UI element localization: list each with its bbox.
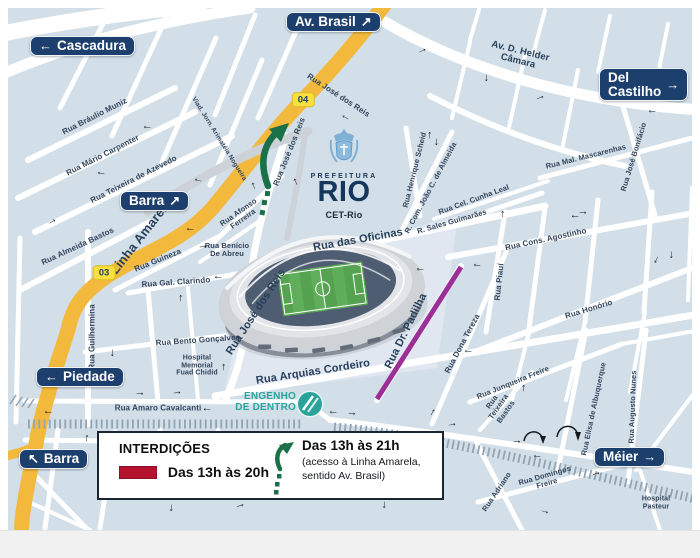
street-label: Rua Amaro Cavalcanti — [115, 405, 202, 414]
direction-sign-cascadura: ←Cascadura — [30, 36, 135, 56]
oneway-arrow-icon: → — [432, 137, 443, 148]
oneway-arrow-icon: → — [218, 362, 229, 373]
street-label: Rua Guilhermina — [89, 304, 98, 370]
legend-green-label: Das 13h às 21h — [302, 438, 420, 453]
oneway-arrow-icon: → — [471, 260, 484, 273]
oneway-arrow-icon: → — [462, 346, 474, 358]
sign-arrow-icon: → — [643, 450, 656, 464]
green-access-arrow-icon — [269, 441, 295, 497]
prefeitura-crest-icon — [328, 128, 360, 166]
oneway-arrow-icon: → — [201, 404, 212, 415]
direction-sign-av-brasil: Av. Brasil↗ — [286, 12, 381, 32]
oneway-arrow-icon: → — [135, 388, 146, 399]
oneway-arrow-icon: → — [518, 383, 529, 394]
road-closure-map: Rua Bráulio MunizRua Mário CarpenterRua … — [0, 0, 700, 557]
oneway-arrow-icon: → — [570, 212, 581, 223]
oneway-arrow-icon: → — [141, 122, 153, 134]
route-badge-03: 03 — [93, 265, 116, 280]
oneway-arrow-icon: → — [42, 407, 54, 419]
legend-green-sub2: sentido Av. Brasil) — [302, 470, 420, 484]
oneway-arrow-icon: → — [108, 348, 119, 359]
sign-label: Del Castilho — [608, 71, 661, 98]
station-label-line2: DE DENTRO — [226, 403, 296, 414]
oneway-arrow-icon: → — [414, 264, 426, 276]
route-badge-04: 04 — [292, 92, 315, 107]
legend-green-sub1: (acesso à Linha Amarela, — [302, 456, 420, 470]
direction-sign-barra-north: Barra↗ — [120, 191, 189, 211]
oneway-arrow-icon: → — [175, 293, 186, 304]
direction-sign-piedade: ←Piedade — [36, 367, 124, 387]
oneway-arrow-icon: → — [346, 407, 358, 419]
oneway-arrow-icon: → — [197, 240, 209, 252]
oneway-arrow-icon: → — [80, 432, 93, 445]
red-closure-swatch — [119, 466, 157, 479]
oneway-arrow-icon: → — [646, 106, 658, 118]
oneway-arrow-icon: → — [531, 451, 543, 463]
prefeitura-rio-logo: PREFEITURA RIO CET-Rio — [306, 128, 382, 220]
oneway-arrow-icon: → — [667, 250, 678, 261]
legend-right: Das 13h às 21h (acesso à Linha Amarela, … — [269, 433, 420, 498]
oneway-arrow-icon: → — [512, 436, 523, 447]
direction-sign-barra-south: ↖Barra — [19, 449, 88, 469]
oneway-arrow-icon: → — [446, 418, 459, 431]
sign-label: Méier — [603, 450, 638, 464]
sign-arrow-icon: ↗ — [361, 15, 372, 29]
sign-arrow-icon: → — [666, 78, 679, 92]
sign-label: Av. Brasil — [295, 15, 356, 29]
sign-arrow-icon: ↖ — [28, 452, 39, 466]
sign-label: Barra — [129, 194, 164, 208]
legend-title: INTERDIÇÕES — [119, 441, 269, 456]
oneway-arrow-icon: → — [379, 499, 391, 511]
oneway-arrow-icon: → — [166, 502, 178, 514]
oneway-arrow-icon: → — [184, 224, 196, 236]
direction-sign-meier: Méier→ — [594, 447, 665, 467]
oneway-arrow-icon: → — [482, 73, 493, 84]
sign-label: Piedade — [63, 370, 115, 384]
street-label: Hospital Memorial Fuad Chidid — [174, 354, 220, 377]
legend-left: INTERDIÇÕES Das 13h às 20h — [99, 433, 269, 498]
sign-arrow-icon: ← — [45, 370, 58, 384]
oneway-arrow-icon: → — [95, 168, 108, 181]
legend-box: INTERDIÇÕES Das 13h às 20h Das 13h às 21… — [97, 431, 444, 500]
direction-sign-del-castilho: Del Castilho→ — [599, 68, 688, 101]
logo-rio-text: RIO — [306, 180, 382, 206]
station-label: ENGENHO DE DENTRO — [226, 392, 296, 414]
sign-arrow-icon: ← — [39, 39, 52, 53]
logo-cet-rio-text: CET-Rio — [306, 210, 382, 220]
sign-label: Barra — [44, 452, 79, 466]
oneway-arrow-icon: → — [327, 407, 339, 419]
sign-arrow-icon: ↗ — [169, 194, 180, 208]
bottom-gray-strip — [0, 530, 700, 558]
sign-label: Cascadura — [57, 39, 126, 53]
oneway-arrow-icon: → — [212, 272, 224, 284]
oneway-arrow-icon: → — [171, 386, 183, 398]
oneway-arrow-icon: → — [497, 209, 508, 220]
legend-red-label: Das 13h às 20h — [168, 464, 269, 480]
street-label: Hospital Pasteur — [634, 495, 678, 510]
train-station-icon — [297, 391, 324, 418]
